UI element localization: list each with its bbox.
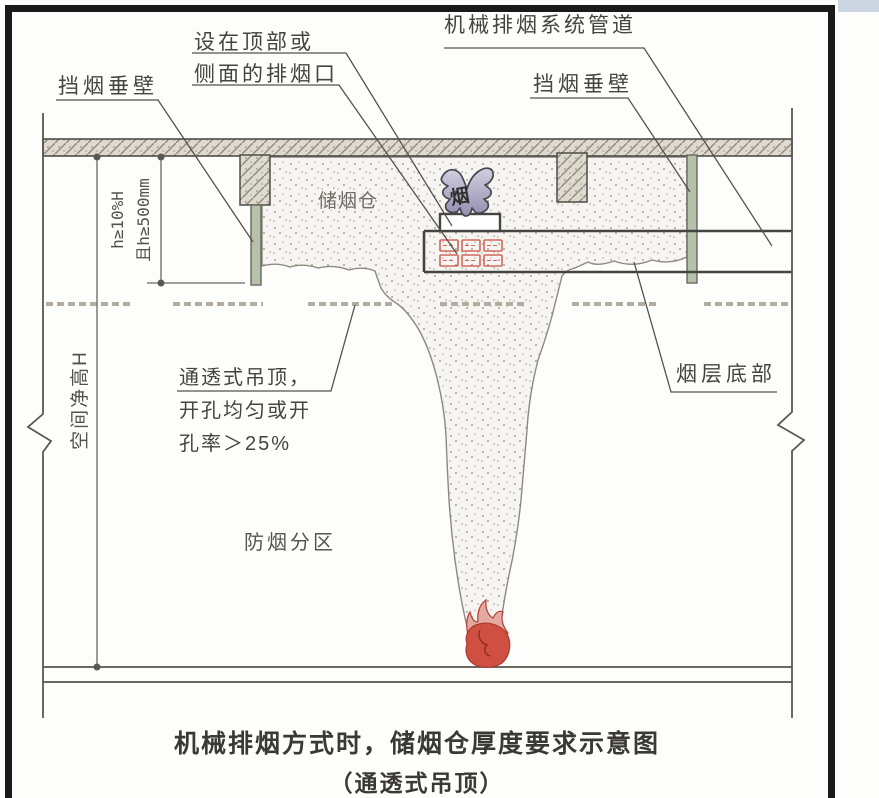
label-exhaust-duct: 机械排烟系统管道 <box>444 9 636 39</box>
floor-lines <box>43 667 792 682</box>
label-smoke-prevention-zone: 防烟分区 <box>244 526 336 555</box>
label-vent-line2: 侧面的排烟口 <box>194 58 338 88</box>
dimension-text-clear-height: 空间净高H <box>65 340 95 460</box>
dimension-text-line2: 且h≥500mm <box>131 155 157 285</box>
permeable-ceiling-line2: 开孔均匀或开 <box>179 395 311 428</box>
dimension-text-line1: h≥10%H <box>105 155 131 285</box>
smoke-curtain-right <box>687 155 697 283</box>
label-smoke-curtain-left: 挡烟垂壁 <box>58 70 158 100</box>
label-permeable-ceiling: 通透式吊顶， 开孔均匀或开 孔率＞25% <box>179 362 311 461</box>
dimension-text-smoke-depth: h≥10%H 且h≥500mm <box>105 155 161 285</box>
diagram-page: 挡烟垂壁 设在顶部或 侧面的排烟口 机械排烟系统管道 挡烟垂壁 储烟仓 烟 h≥… <box>0 0 879 798</box>
label-smoke-layer-bottom: 烟层底部 <box>676 358 776 388</box>
wall-left <box>28 113 51 718</box>
label-smoke-curtain-right: 挡烟垂壁 <box>533 68 633 98</box>
label-smoke-reservoir: 储烟仓 <box>318 186 378 213</box>
diagram-canvas <box>0 0 879 798</box>
smoke-curtain-left <box>251 205 261 285</box>
label-vent-line1: 设在顶部或 <box>194 26 314 56</box>
figure-caption-subtitle: （通透式吊顶） <box>42 764 792 798</box>
dimension-smoke-layer-depth <box>147 154 245 287</box>
scan-artifact <box>838 0 879 12</box>
wall-right <box>778 108 804 718</box>
smoke-vent-throat <box>440 214 500 231</box>
hanger-block-middle <box>557 153 587 202</box>
permeable-ceiling-line1: 通透式吊顶， <box>179 362 311 395</box>
ceiling-slab <box>43 139 792 156</box>
permeable-ceiling-line3: 孔率＞25% <box>179 428 311 461</box>
figure-caption-title: 机械排烟方式时，储烟仓厚度要求示意图 <box>42 724 792 760</box>
hanger-block-left <box>240 155 270 205</box>
